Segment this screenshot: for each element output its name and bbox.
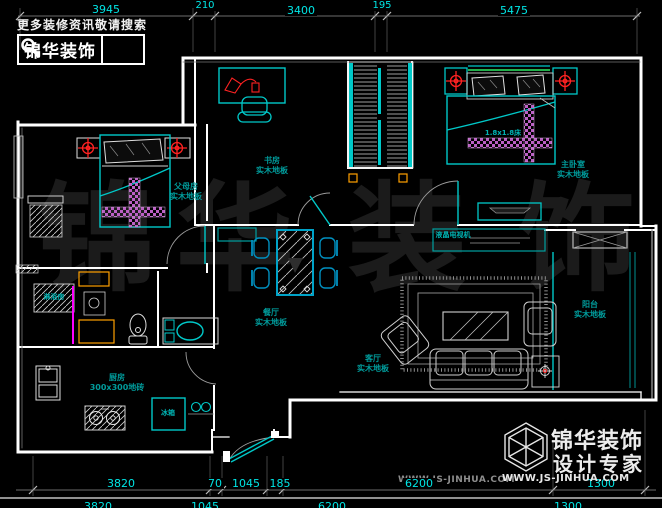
cabinet-block bbox=[349, 174, 357, 182]
dimension-label: 3400 bbox=[285, 5, 317, 16]
header-tagline: 更多装修资讯敬请搜索 bbox=[17, 16, 147, 33]
floor-lamp bbox=[532, 356, 559, 387]
floor-type: 实木地板 bbox=[255, 318, 287, 328]
room-label-kitchen: 厨房 300x300地砖 bbox=[90, 373, 145, 393]
vanity-cabinet bbox=[79, 272, 109, 286]
bathroom-fixtures bbox=[34, 272, 218, 344]
room-name: 阳台 bbox=[574, 300, 606, 310]
logo-website: WWW.JS-JINHUA.COM bbox=[502, 473, 629, 484]
door-jamb bbox=[223, 451, 230, 462]
floor-type: 实木地板 bbox=[574, 310, 606, 320]
room-name: 厨房 bbox=[90, 373, 145, 383]
floor-type: 实木地板 bbox=[256, 166, 288, 176]
brand-search-box: 锦华装饰 bbox=[17, 34, 145, 65]
bathtub-basin bbox=[163, 318, 218, 344]
dimension-label: 195 bbox=[370, 0, 393, 11]
dimension-label-clipped: 1300 bbox=[552, 501, 584, 508]
room-name: 父母房 bbox=[170, 182, 202, 192]
room-name: 客厅 bbox=[357, 354, 389, 364]
wardrobe bbox=[348, 62, 413, 168]
washbasin bbox=[84, 292, 105, 315]
pillow bbox=[517, 75, 545, 95]
cabinet-block bbox=[399, 174, 407, 182]
dimension-label-clipped: 1045 bbox=[189, 501, 221, 508]
vanity-cabinet bbox=[79, 320, 114, 343]
carpet-runner bbox=[129, 178, 140, 227]
sideboard bbox=[218, 228, 256, 241]
pillow bbox=[472, 76, 505, 96]
dimension-label: 5475 bbox=[498, 5, 530, 16]
cube-logo-icon bbox=[502, 420, 550, 474]
label-shower: 淋浴房 bbox=[44, 293, 65, 301]
doors bbox=[167, 181, 458, 462]
desk-chair bbox=[238, 97, 271, 122]
kitchen-sink bbox=[36, 366, 60, 400]
radiator bbox=[30, 205, 62, 237]
room-name: 书房 bbox=[256, 156, 288, 166]
carpet-runner bbox=[102, 207, 165, 217]
floor-type: 实木地板 bbox=[557, 170, 589, 180]
dimension-label: 6200 bbox=[403, 478, 435, 489]
room-label-dining: 餐厅 实木地板 bbox=[255, 308, 287, 328]
carpet-runner bbox=[468, 138, 552, 148]
dimension-label: 1045 bbox=[230, 478, 262, 489]
windows bbox=[14, 136, 635, 390]
magnifier-icon bbox=[103, 36, 131, 63]
rug-inner bbox=[418, 293, 533, 358]
floor-type: 实木地板 bbox=[170, 192, 202, 202]
desk-phone bbox=[225, 78, 259, 93]
compass-icon bbox=[446, 71, 466, 91]
label-master-bed: 1.8x1.8床 bbox=[485, 129, 521, 137]
floor-type: 实木地板 bbox=[357, 364, 389, 374]
dimension-label: 70 bbox=[206, 478, 224, 489]
dimension-label: 185 bbox=[268, 478, 293, 489]
room-label-living: 客厅 实木地板 bbox=[357, 354, 389, 374]
master-bedroom-furniture bbox=[447, 66, 555, 220]
room-label-balcony: 阳台 实木地板 bbox=[574, 300, 606, 320]
room-name: 主卧室 bbox=[557, 160, 589, 170]
hallway-meters bbox=[188, 403, 214, 415]
blanket-fold bbox=[447, 102, 555, 130]
coffee-table bbox=[443, 312, 508, 340]
stove bbox=[85, 406, 125, 430]
dining-furniture bbox=[218, 228, 337, 295]
parents-room-furniture bbox=[100, 135, 170, 227]
dimension-label: 3945 bbox=[90, 4, 122, 15]
door-jamb bbox=[271, 431, 279, 438]
compass-icon bbox=[78, 138, 98, 158]
room-label-study: 书房 实木地板 bbox=[256, 156, 288, 176]
floor-type: 300x300地砖 bbox=[90, 383, 145, 393]
label-fridge: 冰箱 bbox=[161, 409, 175, 417]
floorplan-canvas: 锦 华 装 饰 WWW.JS-JINHUA.COM bbox=[0, 0, 662, 508]
balcony-window bbox=[573, 232, 627, 248]
compass-icon bbox=[555, 71, 575, 91]
parents-window bbox=[14, 136, 63, 203]
balcony-rail bbox=[630, 252, 635, 388]
room-label-parents: 父母房 实木地板 bbox=[170, 182, 202, 202]
room-name: 餐厅 bbox=[255, 308, 287, 318]
label-tv: 液晶电视机 bbox=[436, 231, 471, 239]
dimension-label: 210 bbox=[193, 0, 216, 11]
room-label-master: 主卧室 实木地板 bbox=[557, 160, 589, 180]
carpet-runner bbox=[524, 104, 534, 162]
door-leaves bbox=[205, 181, 458, 462]
dimension-label-clipped: 6200 bbox=[316, 501, 348, 508]
living-room-furniture bbox=[379, 278, 559, 389]
tv-icon bbox=[490, 208, 530, 213]
pillow bbox=[104, 139, 163, 163]
dimension-label: 3820 bbox=[105, 478, 137, 489]
toilet bbox=[129, 314, 147, 344]
dimension-label-clipped: 3820 bbox=[82, 501, 114, 508]
